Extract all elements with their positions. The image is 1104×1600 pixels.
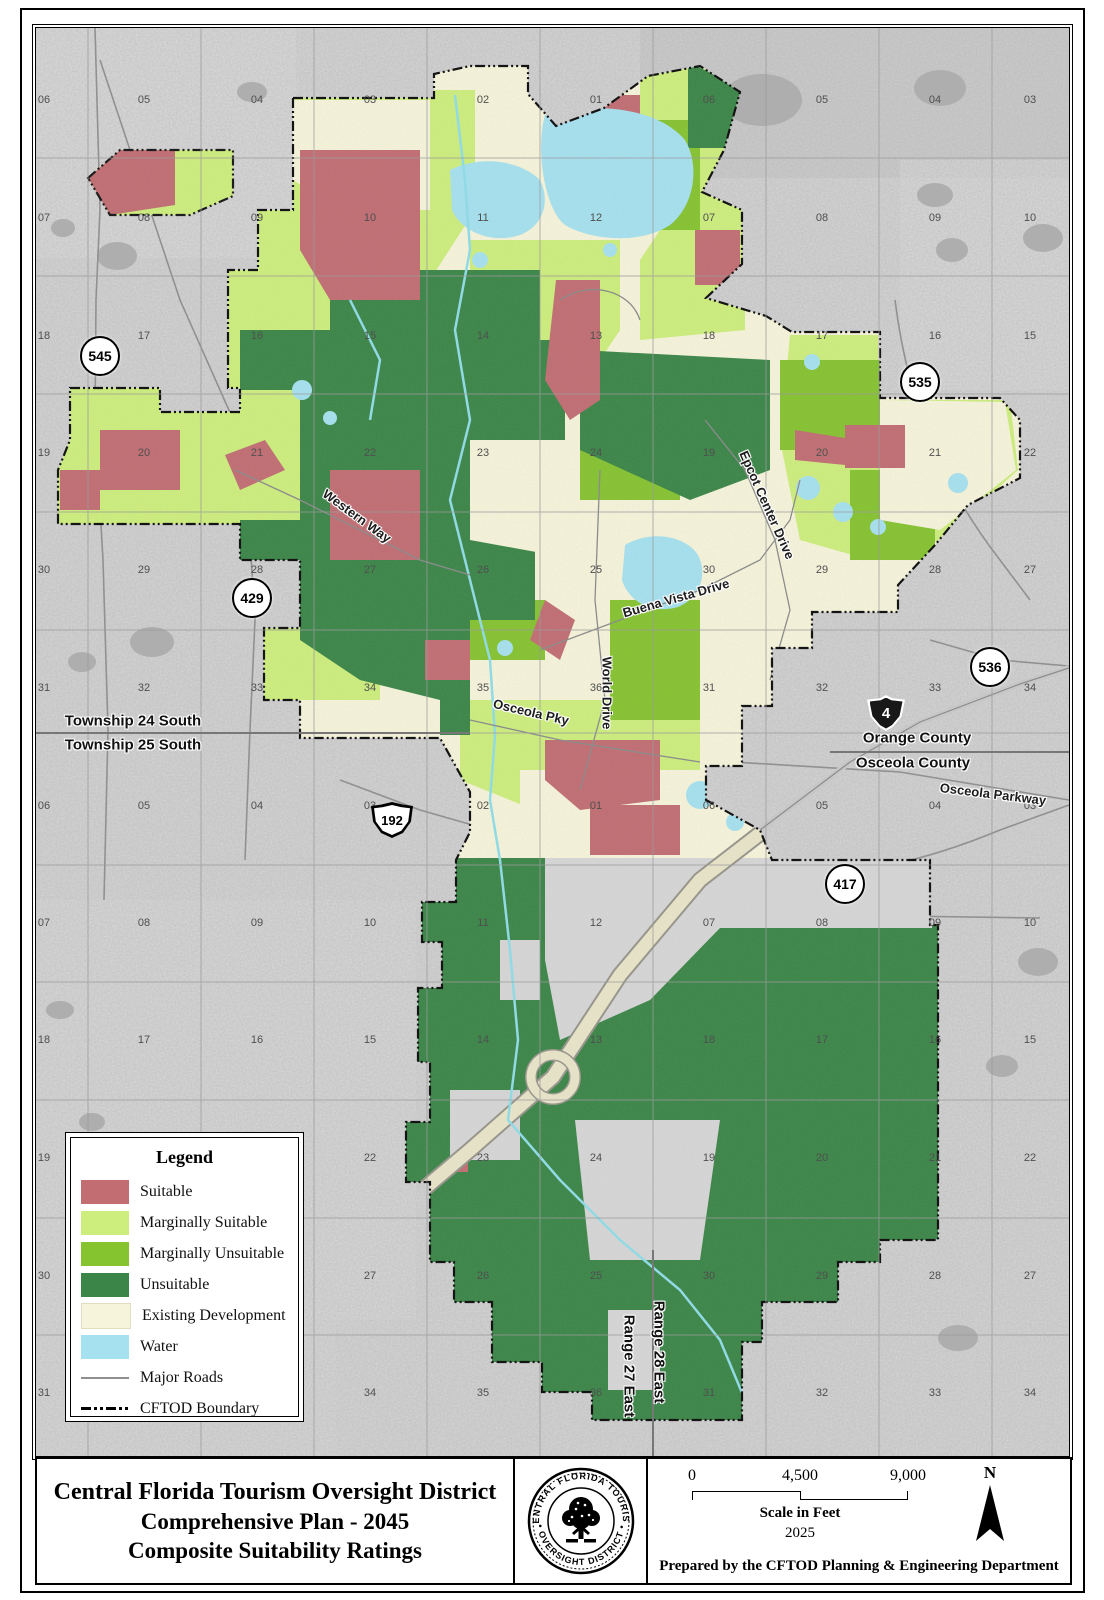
section-number: 31 <box>38 682 50 694</box>
section-number: 19 <box>703 1152 715 1164</box>
section-number: 33 <box>251 682 263 694</box>
north-arrow: N <box>965 1463 1015 1555</box>
section-number: 16 <box>929 330 941 342</box>
cftod-seal: CENTRAL FLORIDA TOURISM • OVERSIGHT DIST… <box>515 1459 648 1583</box>
section-number: 20 <box>816 447 828 459</box>
legend-title: Legend <box>66 1147 303 1168</box>
section-number: 12 <box>590 917 602 929</box>
section-number: 09 <box>929 917 941 929</box>
section-number: 28 <box>251 564 263 576</box>
legend-swatch-marg_unsuitable <box>81 1242 129 1266</box>
route-number: 417 <box>833 876 856 892</box>
section-number: 07 <box>703 212 715 224</box>
section-number: 34 <box>364 682 376 694</box>
legend-swatch-water <box>81 1335 129 1359</box>
route-shield-4: 4 <box>867 695 905 731</box>
legend-item-developed: Existing Development <box>66 1300 303 1331</box>
section-number: 09 <box>251 212 263 224</box>
section-number: 24 <box>590 447 602 459</box>
title-line-3: Composite Suitability Ratings <box>128 1538 422 1564</box>
section-number: 36 <box>590 1387 602 1399</box>
section-number: 29 <box>138 564 150 576</box>
section-number: 07 <box>703 917 715 929</box>
route-shield-429: 429 <box>232 578 272 618</box>
section-number: 19 <box>38 447 50 459</box>
section-number: 27 <box>1024 564 1036 576</box>
scale-caption: Scale in Feet <box>760 1505 841 1522</box>
section-number: 04 <box>251 94 263 106</box>
section-number: 04 <box>251 800 263 812</box>
section-number: 09 <box>929 212 941 224</box>
section-number: 17 <box>138 1034 150 1046</box>
section-number: 30 <box>38 1270 50 1282</box>
map-label-world-drive: World Drive <box>600 657 615 730</box>
legend-item-marg_suitable: Marginally Suitable <box>66 1207 303 1238</box>
section-number: 08 <box>138 212 150 224</box>
section-number: 17 <box>138 330 150 342</box>
section-number: 17 <box>816 1034 828 1046</box>
section-number: 08 <box>816 917 828 929</box>
section-number: 32 <box>816 682 828 694</box>
section-number: 19 <box>703 447 715 459</box>
map-title: Central Florida Tourism Oversight Distri… <box>37 1459 515 1583</box>
section-number: 28 <box>929 564 941 576</box>
section-number: 34 <box>1024 1387 1036 1399</box>
title-line-2: Comprehensive Plan - 2045 <box>141 1509 410 1535</box>
section-number: 27 <box>364 564 376 576</box>
section-number: 34 <box>364 1387 376 1399</box>
route-shield-192: 192 <box>371 802 413 838</box>
map-label-range-27-east: Range 27 East <box>621 1315 638 1418</box>
map-label-orange-county: Orange County <box>863 730 971 747</box>
route-shield-545: 545 <box>80 336 120 376</box>
section-number: 29 <box>816 564 828 576</box>
section-number: 30 <box>38 564 50 576</box>
section-number: 01 <box>590 800 602 812</box>
section-number: 20 <box>138 447 150 459</box>
legend-label: Existing Development <box>142 1307 286 1325</box>
section-number: 10 <box>364 917 376 929</box>
section-number: 10 <box>1024 917 1036 929</box>
section-number: 35 <box>477 682 489 694</box>
section-number: 31 <box>38 1387 50 1399</box>
legend-label: Major Roads <box>140 1369 223 1387</box>
section-number: 10 <box>1024 212 1036 224</box>
section-number: 32 <box>816 1387 828 1399</box>
section-number: 11 <box>477 917 488 929</box>
legend-item-suitable: Suitable <box>66 1176 303 1207</box>
route-number: 192 <box>374 805 410 835</box>
section-number: 18 <box>38 330 50 342</box>
legend-label: Marginally Unsuitable <box>140 1245 284 1263</box>
section-number: 05 <box>138 800 150 812</box>
legend-item-water: Water <box>66 1331 303 1362</box>
legend-label: Unsuitable <box>140 1276 209 1294</box>
legend-item-roadline: Major Roads <box>66 1362 303 1393</box>
section-number: 02 <box>477 800 489 812</box>
legend: Legend SuitableMarginally SuitableMargin… <box>65 1132 304 1422</box>
route-shield-417: 417 <box>825 864 865 904</box>
section-number: 31 <box>703 682 715 694</box>
section-number: 18 <box>38 1034 50 1046</box>
legend-swatch-marg_suitable <box>81 1211 129 1235</box>
section-number: 13 <box>590 330 602 342</box>
scale-bar-segment-1 <box>692 1491 800 1500</box>
section-number: 19 <box>38 1152 50 1164</box>
scale-year: 2025 <box>785 1525 815 1542</box>
map-label-range-28-east: Range 28 East <box>651 1301 668 1404</box>
section-number: 20 <box>816 1152 828 1164</box>
section-number: 30 <box>703 564 715 576</box>
legend-item-marg_unsuitable: Marginally Unsuitable <box>66 1238 303 1269</box>
section-number: 08 <box>138 917 150 929</box>
legend-swatch-unsuitable <box>81 1273 129 1297</box>
map-label-buena-vista-drive: Buena Vista Drive <box>621 576 731 621</box>
section-number: 15 <box>364 1034 376 1046</box>
section-number: 18 <box>703 330 715 342</box>
section-number: 06 <box>38 94 50 106</box>
section-number: 16 <box>251 1034 263 1046</box>
section-number: 32 <box>138 682 150 694</box>
section-number: 09 <box>251 917 263 929</box>
section-number: 21 <box>929 447 941 459</box>
route-number: 536 <box>978 659 1001 675</box>
scale-tick-9000: 9,000 <box>890 1467 926 1485</box>
section-number: 23 <box>477 1152 489 1164</box>
section-number: 22 <box>364 1152 376 1164</box>
route-shield-535: 535 <box>900 362 940 402</box>
north-label: N <box>965 1463 1015 1483</box>
section-number: 16 <box>251 330 263 342</box>
section-number: 35 <box>477 1387 489 1399</box>
section-number: 34 <box>1024 682 1036 694</box>
section-number: 25 <box>590 564 602 576</box>
section-number: 30 <box>703 1270 715 1282</box>
section-number: 14 <box>477 1034 489 1046</box>
section-number: 16 <box>929 1034 941 1046</box>
route-number: 535 <box>908 374 931 390</box>
section-number: 27 <box>1024 1270 1036 1282</box>
cftod-seal-icon: CENTRAL FLORIDA TOURISM • OVERSIGHT DIST… <box>525 1465 637 1577</box>
scale-tick-0: 0 <box>688 1467 696 1485</box>
legend-swatch-roadline <box>81 1377 129 1379</box>
section-number: 33 <box>929 682 941 694</box>
legend-swatch-boundaryline <box>81 1407 129 1410</box>
map-label-osceola-pky: Osceola Pky <box>492 696 571 728</box>
section-number: 25 <box>590 1270 602 1282</box>
section-number: 07 <box>38 212 50 224</box>
section-number: 01 <box>590 94 602 106</box>
legend-label: CFTOD Boundary <box>140 1400 259 1418</box>
scale-bar-segment-2 <box>800 1491 908 1500</box>
map-overlay: Legend SuitableMarginally SuitableMargin… <box>36 28 1069 1456</box>
section-number: 28 <box>929 1270 941 1282</box>
section-number: 06 <box>703 800 715 812</box>
legend-label: Marginally Suitable <box>140 1214 267 1232</box>
map-label-western-way: Western Way <box>320 486 394 546</box>
section-number: 21 <box>251 447 263 459</box>
section-number: 03 <box>364 94 376 106</box>
section-number: 04 <box>929 800 941 812</box>
section-number: 05 <box>816 800 828 812</box>
section-number: 22 <box>1024 447 1036 459</box>
section-number: 07 <box>38 917 50 929</box>
legend-swatch-developed <box>81 1303 131 1329</box>
section-number: 24 <box>590 1152 602 1164</box>
section-number: 29 <box>816 1270 828 1282</box>
section-number: 04 <box>929 94 941 106</box>
route-shield-536: 536 <box>970 647 1010 687</box>
section-number: 27 <box>364 1270 376 1282</box>
legend-swatch-suitable <box>81 1180 129 1204</box>
legend-label: Water <box>140 1338 178 1356</box>
legend-item-unsuitable: Unsuitable <box>66 1269 303 1300</box>
scale-tick-4500: 4,500 <box>782 1467 818 1485</box>
legend-items: SuitableMarginally SuitableMarginally Un… <box>66 1176 303 1424</box>
map-label-epcot-center-drive: Epcot Center Drive <box>736 448 797 561</box>
section-number: 22 <box>364 447 376 459</box>
section-number: 31 <box>703 1387 715 1399</box>
route-number: 545 <box>88 348 111 364</box>
section-number: 18 <box>703 1034 715 1046</box>
section-number: 06 <box>703 94 715 106</box>
map-label-township-24-south: Township 24 South <box>65 713 201 730</box>
section-number: 08 <box>816 212 828 224</box>
title-block: Central Florida Tourism Oversight Distri… <box>35 1457 1072 1585</box>
prepared-by: Prepared by the CFTOD Planning & Enginee… <box>648 1558 1070 1575</box>
section-number: 12 <box>590 212 602 224</box>
section-number: 22 <box>1024 1152 1036 1164</box>
section-number: 26 <box>477 564 489 576</box>
section-number: 15 <box>1024 1034 1036 1046</box>
title-line-1: Central Florida Tourism Oversight Distri… <box>54 1479 497 1506</box>
legend-item-boundaryline: CFTOD Boundary <box>66 1393 303 1424</box>
section-number: 05 <box>816 94 828 106</box>
section-number: 13 <box>590 1034 602 1046</box>
section-number: 17 <box>816 330 828 342</box>
north-arrow-icon <box>970 1483 1010 1545</box>
section-number: 06 <box>38 800 50 812</box>
map-label-osceola-parkway: Osceola Parkway <box>939 780 1047 808</box>
scale-and-credits: 0 4,500 9,000 Scale in Feet 2025 Prepare… <box>648 1459 1070 1583</box>
section-number: 33 <box>929 1387 941 1399</box>
section-number: 02 <box>477 94 489 106</box>
map-label-township-25-south: Township 25 South <box>65 737 201 754</box>
section-number: 11 <box>477 212 488 224</box>
route-number: 429 <box>240 590 263 606</box>
route-number: 4 <box>870 698 903 729</box>
section-number: 14 <box>477 330 489 342</box>
section-number: 21 <box>929 1152 941 1164</box>
section-number: 26 <box>477 1270 489 1282</box>
section-number: 23 <box>477 447 489 459</box>
section-number: 10 <box>364 212 376 224</box>
section-number: 15 <box>364 330 376 342</box>
map-label-osceola-county: Osceola County <box>856 755 970 772</box>
section-number: 15 <box>1024 330 1036 342</box>
section-number: 03 <box>1024 94 1036 106</box>
legend-label: Suitable <box>140 1183 192 1201</box>
section-number: 05 <box>138 94 150 106</box>
map-document: Legend SuitableMarginally SuitableMargin… <box>0 0 1104 1600</box>
